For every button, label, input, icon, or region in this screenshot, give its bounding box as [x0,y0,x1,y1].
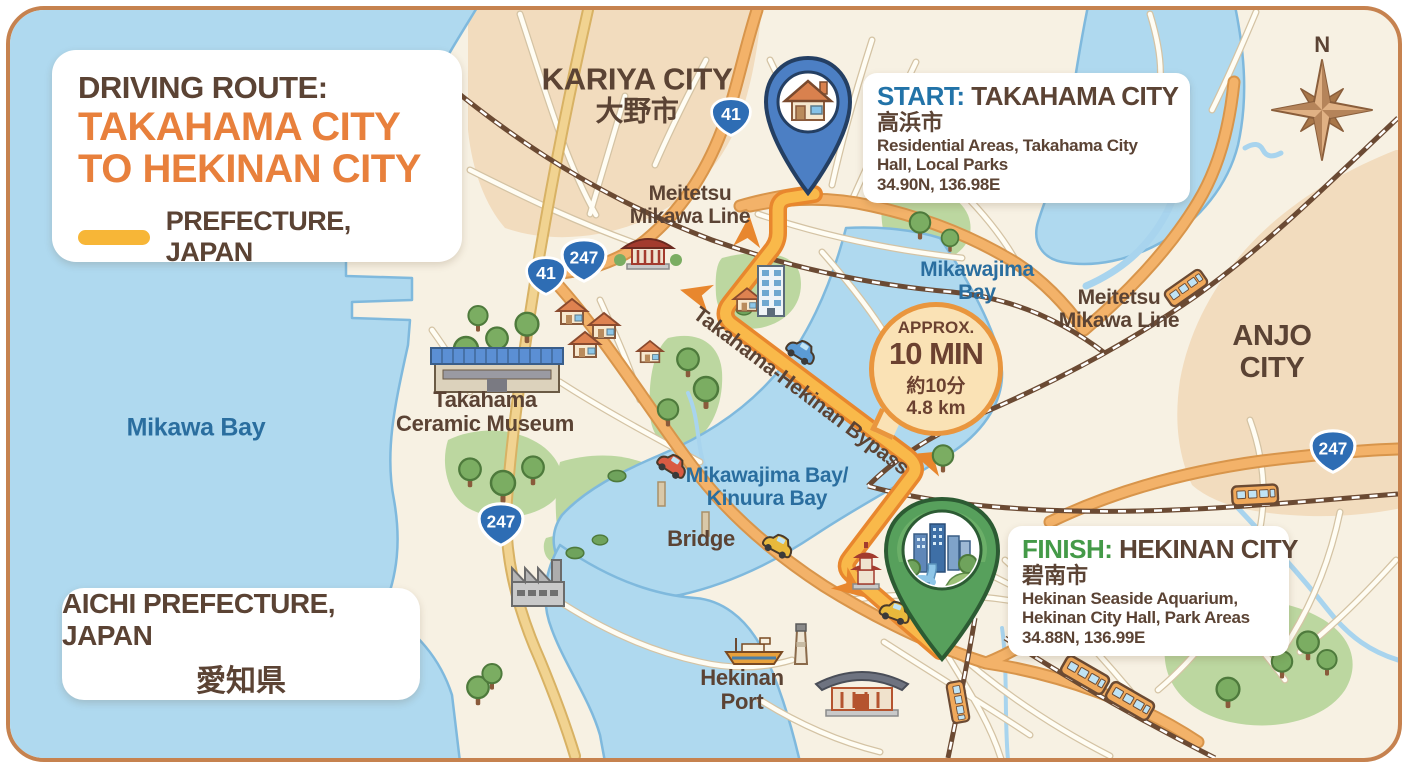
shield-number: 41 [536,263,556,283]
finish-coordinates: 34.88N, 136.99E [1022,628,1275,647]
finish-pin [872,494,1012,662]
region-name: AICHI PREFECTURE, JAPAN [62,588,420,652]
shield-number: 247 [1319,438,1348,458]
finish-description: Hekinan Seaside Aquarium, Hekinan City H… [1022,589,1275,628]
route-41-shield: 41 [525,256,567,296]
label-anjo-city: ANJO CITY [1232,321,1311,385]
start-card-title: START: TAKAHAMA CITY [877,82,1176,111]
route-247-shield: 247 [560,238,608,283]
title-line1: TAKAHAMA CITY [78,106,436,148]
region-card: AICHI PREFECTURE, JAPAN 愛知県 [62,588,420,700]
route-legend: PREFECTURE, JAPAN [78,206,436,268]
finish-card: FINISH: HEKINAN CITY 碧南市 Hekinan Seaside… [1008,526,1289,656]
finish-card-title: FINISH: HEKINAN CITY [1022,535,1275,564]
start-pin [758,54,858,196]
region-name-jp: 愛知県 [196,656,286,700]
label-hekinan-port: Hekinan Port [700,666,783,714]
start-card: START: TAKAHAMA CITY 高浜市 Residential Are… [863,73,1190,203]
badge-distance: 4.8 km [906,398,965,420]
label-mikawajima-bay: Mikawajima Bay [920,258,1034,304]
title-heading: DRIVING ROUTE: [78,70,436,106]
start-city-name: TAKAHAMA CITY [971,81,1178,111]
label-kariya-city: KARIYA CITY 大野市 [542,63,733,128]
badge-approx: APPROX. [898,318,975,338]
start-coordinates: 34.90N, 136.98E [877,175,1176,194]
time-badge: APPROX. 10 MIN 約10分 4.8 km [869,302,1003,436]
start-description: Residential Areas, Takahama City Hall, L… [877,136,1176,175]
route-41-shield: 41 [710,97,752,137]
finish-city-name-jp: 碧南市 [1022,564,1275,589]
badge-duration: 10 MIN [889,338,983,371]
shield-number: 247 [487,511,516,531]
label-kariya-en: KARIYA CITY [542,63,733,97]
label-mikawa-bay: Mikawa Bay [127,414,266,442]
label-kinuura-bay: Mikawajima Bay/ Kinuura Bay [686,464,848,510]
building-icon [758,266,784,316]
label-kariya-jp: 大野市 [542,97,733,128]
title-card: DRIVING ROUTE: TAKAHAMA CITY TO HEKINAN … [52,50,462,262]
route-map-infographic: DRIVING ROUTE: TAKAHAMA CITY TO HEKINAN … [0,0,1408,768]
compass-rose-icon [1270,58,1374,162]
museum-icon [431,348,563,392]
label-compass-north: N [1314,33,1330,57]
factory-icon [512,560,564,606]
shield-number: 41 [721,104,741,124]
route-247-shield: 247 [1309,429,1357,474]
label-ceramic-museum: Takahama Ceramic Museum [396,388,574,436]
finish-prefix: FINISH: [1022,534,1112,564]
label-meitetsu-line-east: Meitetsu Mikawa Line [1059,286,1179,332]
route-line-swatch [78,230,150,245]
temple-icon [816,672,908,716]
start-city-name-jp: 高浜市 [877,111,1176,136]
finish-city-name: HEKINAN CITY [1119,534,1298,564]
label-bridge: Bridge [667,527,735,551]
legend-label: PREFECTURE, JAPAN [166,206,436,268]
lighthouse-icon [795,624,807,664]
badge-duration-jp: 約10分 [906,371,965,398]
route-247-shield: 247 [477,502,525,547]
label-meitetsu-line-west: Meitetsu Mikawa Line [630,182,750,228]
title-line2: TO HEKINAN CITY [78,148,436,190]
train-icon [1232,484,1279,505]
shield-number: 247 [570,247,599,267]
start-prefix: START: [877,81,965,111]
